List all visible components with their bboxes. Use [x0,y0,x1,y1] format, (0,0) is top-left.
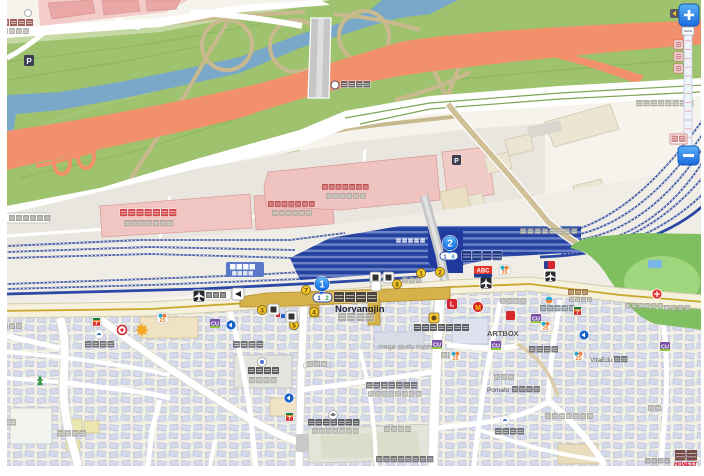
svg-text:7: 7 [288,416,291,422]
svg-text:mega study tower: mega study tower [378,344,434,351]
svg-text:CU: CU [661,345,669,351]
svg-text:25: 25 [501,270,507,276]
svg-text:2: 2 [447,238,453,249]
svg-text:25: 25 [575,356,581,362]
svg-text:(: ( [303,363,305,369]
svg-text:HONEST: HONEST [674,462,698,468]
svg-text:1: 1 [419,270,423,277]
svg-text:VitaEdu: VitaEdu [590,357,613,364]
svg-text:ARTBOX: ARTBOX [487,329,519,338]
svg-text:25: 25 [452,356,458,362]
svg-text:CU: CU [433,343,441,349]
svg-text:CU: CU [211,322,219,328]
svg-text:L: L [450,302,455,309]
svg-text:8: 8 [395,281,399,288]
svg-text:M: M [475,305,481,312]
svg-text:CU: CU [492,344,500,350]
svg-text:3: 3 [260,307,264,314]
svg-text:P: P [26,57,32,66]
svg-text:7: 7 [576,310,579,316]
svg-text:ABC: ABC [477,269,491,275]
svg-text:5: 5 [292,322,296,329]
svg-text:7: 7 [95,321,98,327]
svg-text:CU: CU [532,317,540,323]
svg-text:1: 1 [443,254,446,260]
svg-text:2: 2 [438,269,442,276]
svg-text:): ) [329,363,331,369]
svg-text:25: 25 [159,318,165,324]
svg-text:P: P [454,158,459,165]
svg-text:25: 25 [542,326,548,332]
svg-text:7: 7 [304,287,308,294]
svg-text:4: 4 [312,309,316,316]
svg-text:Pomato: Pomato [487,387,510,394]
svg-text:1: 1 [319,279,325,290]
